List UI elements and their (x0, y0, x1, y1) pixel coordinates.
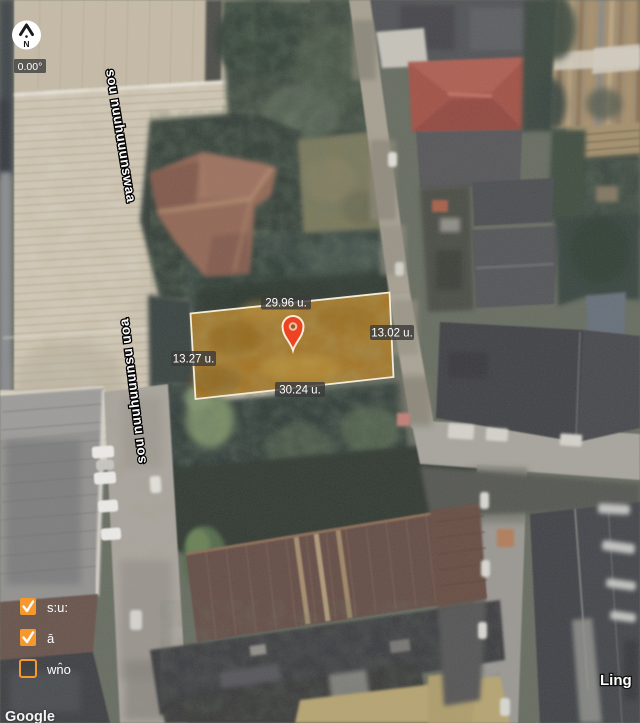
svg-text:ā: ā (47, 631, 55, 646)
svg-text:Google: Google (5, 709, 55, 723)
svg-text:13.27 u.: 13.27 u. (173, 354, 215, 366)
svg-text:Ling: Ling (600, 672, 632, 689)
svg-text:30.24 u.: 30.24 u. (279, 385, 321, 397)
svg-text:13.02 u.: 13.02 u. (371, 328, 413, 340)
svg-text:s:u:: s:u: (47, 600, 68, 615)
svg-text:N: N (23, 39, 29, 49)
svg-text:29.96 u.: 29.96 u. (265, 298, 307, 310)
svg-text:0.00°: 0.00° (18, 61, 43, 73)
svg-text:wn̂o: wn̂o (46, 662, 71, 677)
